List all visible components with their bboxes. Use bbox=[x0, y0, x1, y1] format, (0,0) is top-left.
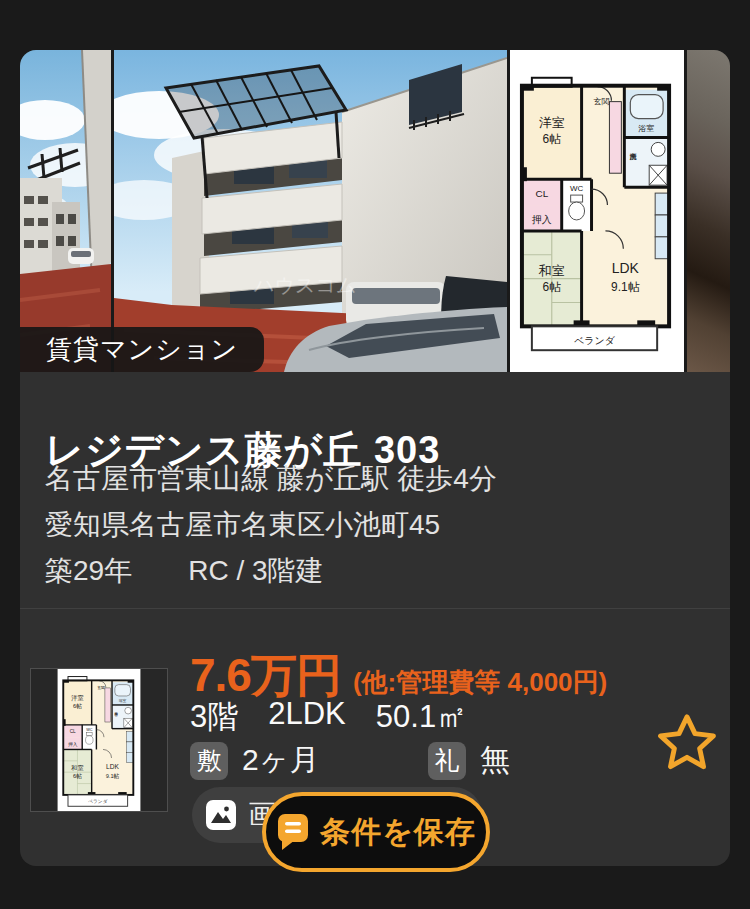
save-button-label: 条件を保存 bbox=[320, 812, 476, 853]
favorite-star-button[interactable] bbox=[653, 710, 721, 776]
key-money-badge: 礼 bbox=[428, 742, 466, 780]
floorplan-image bbox=[510, 50, 684, 372]
listing-age: 築29年 bbox=[45, 548, 132, 594]
floorplan-thumbnail[interactable] bbox=[30, 668, 168, 812]
exterior-main-illustration: ハウスコム bbox=[114, 50, 507, 372]
photo-carousel[interactable]: ハウスコム 賃貸マンション bbox=[20, 50, 730, 372]
listing-structure: RC / 3階建 bbox=[188, 548, 323, 594]
key-money-value: 無 bbox=[480, 740, 510, 781]
deposit-badge: 敷 bbox=[190, 742, 228, 780]
listing-address: 愛知県名古屋市名東区小池町45 bbox=[45, 502, 497, 548]
key-money-fee: 礼 無 bbox=[428, 740, 510, 781]
management-fee: (他:管理費等 4,000円) bbox=[353, 665, 607, 700]
save-conditions-button[interactable]: 条件を保存 bbox=[262, 792, 490, 872]
floorplan-thumbnail-image bbox=[31, 669, 167, 811]
star-icon bbox=[653, 710, 721, 776]
listing-meta: 名古屋市営東山線 藤が丘駅 徒歩4分 愛知県名古屋市名東区小池町45 築29年 … bbox=[45, 456, 497, 594]
spec-floor: 3階 bbox=[190, 696, 238, 738]
exterior-left-illustration bbox=[20, 50, 111, 372]
photo-floorplan[interactable] bbox=[510, 50, 684, 372]
deposit-value: 2ヶ月 bbox=[242, 740, 319, 781]
spec-area: 50.1㎡ bbox=[376, 696, 467, 738]
photo-exterior-main[interactable]: ハウスコム bbox=[114, 50, 507, 372]
spec-layout: 2LDK bbox=[268, 696, 346, 738]
image-icon bbox=[206, 800, 236, 830]
spec-row: 3階 2LDK 50.1㎡ bbox=[190, 696, 467, 738]
memo-icon bbox=[276, 812, 310, 852]
section-divider bbox=[20, 608, 730, 609]
listing-card[interactable]: ハウスコム 賃貸マンション レジデンス藤が丘 303 名古屋市営東山線 藤が丘駅… bbox=[20, 50, 730, 866]
photo-interior-right[interactable] bbox=[687, 50, 730, 372]
deposit-fee: 敷 2ヶ月 bbox=[190, 740, 319, 781]
listing-access: 名古屋市営東山線 藤が丘駅 徒歩4分 bbox=[45, 456, 497, 502]
property-type-badge: 賃貸マンション bbox=[20, 327, 264, 372]
photo-watermark: ハウスコム bbox=[253, 274, 356, 296]
photo-exterior-left[interactable] bbox=[20, 50, 111, 372]
